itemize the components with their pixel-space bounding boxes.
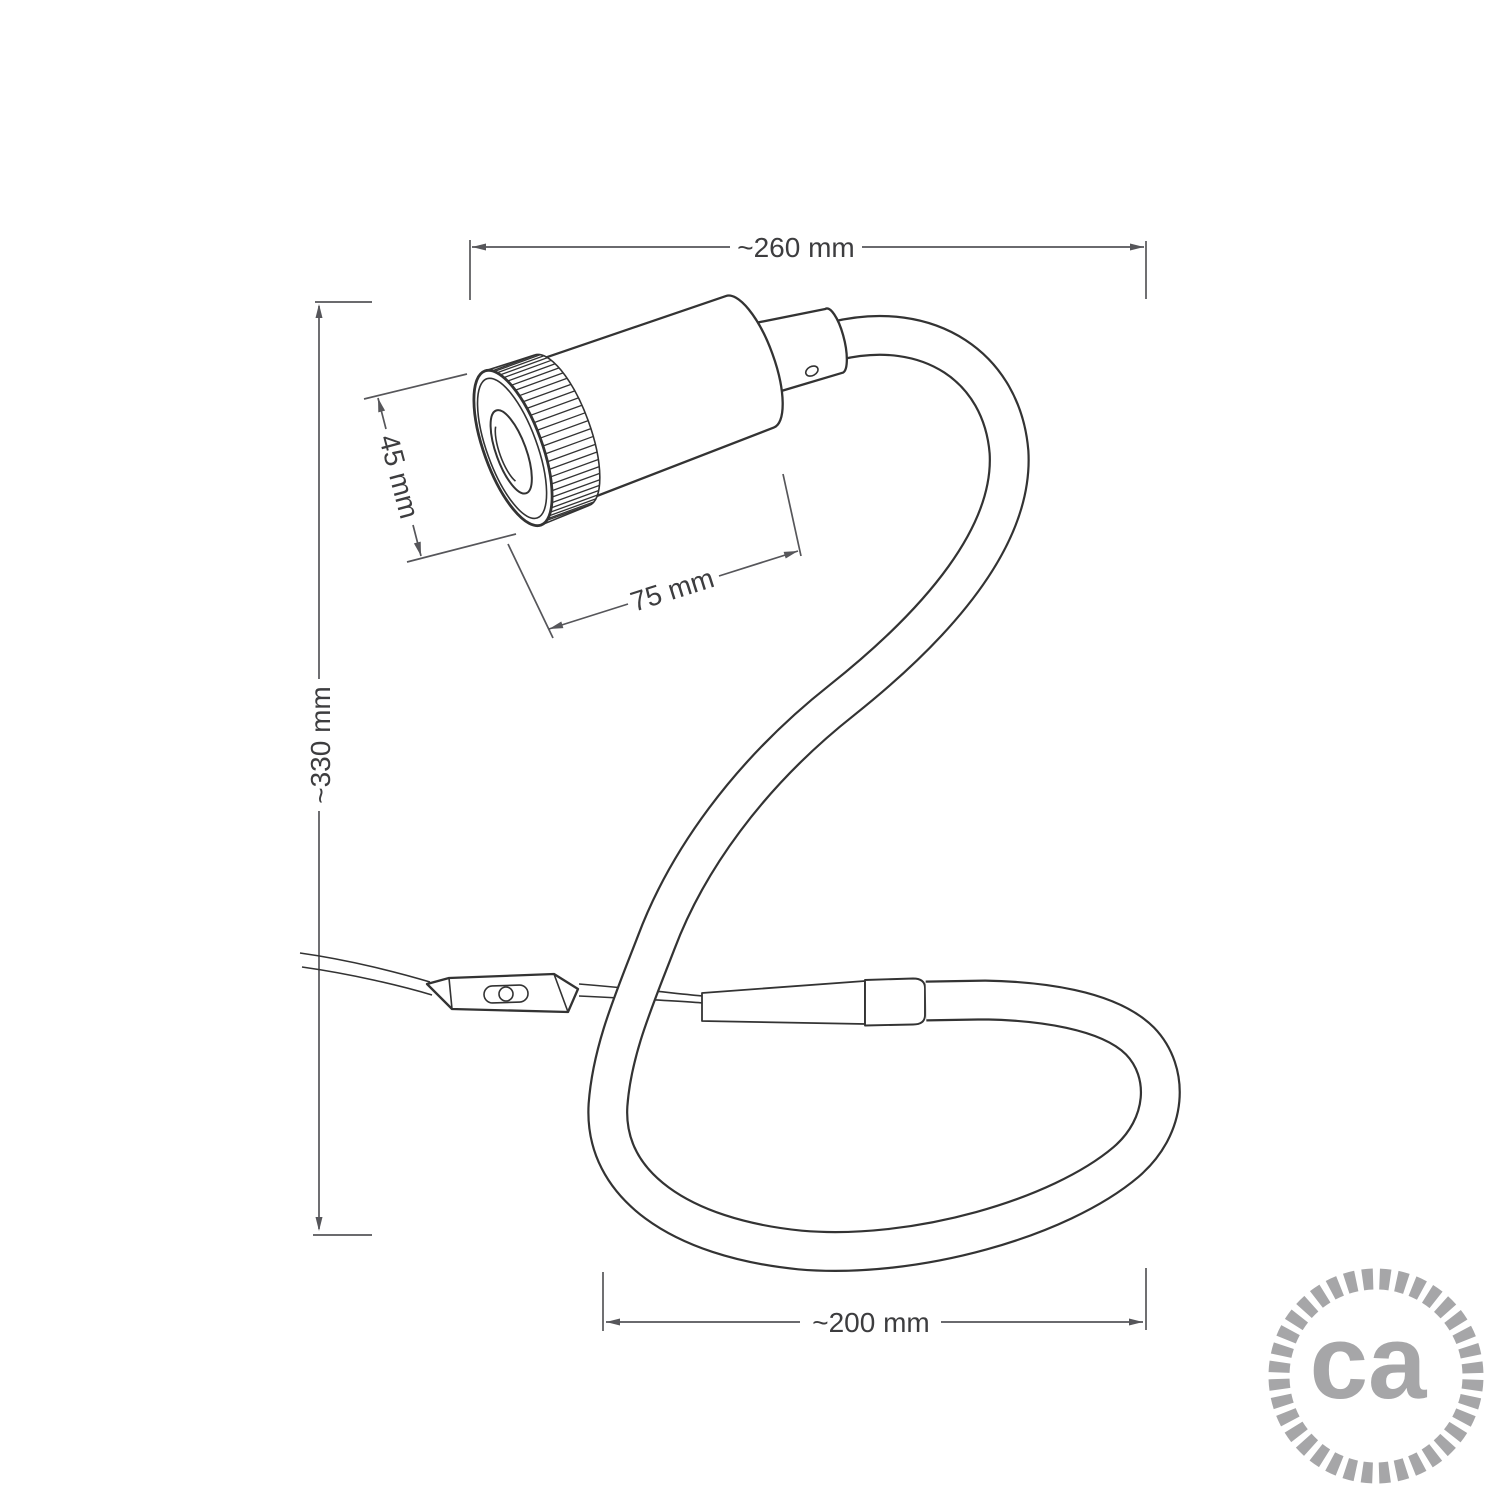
ferrule [865,979,925,1026]
dimension-top-width: ~260 mm [470,232,1146,300]
arrowhead-right [784,551,798,559]
arrowhead-right [1130,244,1144,251]
witness-line [364,374,467,399]
arrowhead-right [1129,1319,1143,1326]
arrowhead-left [472,244,486,251]
arrowhead-left [549,622,563,630]
cable-sleeve [702,981,865,1024]
arrowhead-bottom [414,542,421,556]
witness-line [407,534,516,562]
tube-fill [608,335,1161,1251]
lamp-head [458,250,872,535]
inline-switch [427,974,578,1012]
dimension-bottom-width: ~200 mm [603,1268,1146,1338]
dimension-label-head-length: 75 mm [627,562,718,617]
arrowhead-top [316,304,323,318]
lamp-technical-drawing: ~260 mm ~330 mm ~200 mm 45 mm 75 mm [0,0,1500,1500]
cord-line [302,967,432,995]
witness-line [783,474,801,556]
witness-line [508,544,553,638]
dimension-label-bottom-width: ~200 mm [812,1307,930,1338]
arrowhead-left [606,1319,620,1326]
dimension-label-head-diameter: 45 mm [373,431,425,522]
sleeve-body [702,981,865,1024]
dimension-label-left-height: ~330 mm [305,686,336,804]
brand-logo[interactable]: ca [1261,1261,1491,1491]
technical-drawing-page: ~260 mm ~330 mm ~200 mm 45 mm 75 mm [0,0,1500,1500]
dimension-label-top-width: ~260 mm [737,232,855,263]
arrowhead-bottom [316,1217,323,1231]
arrowhead-top [378,398,385,412]
ferrule-body [865,979,925,1026]
brand-logo-text: ca [1310,1304,1428,1421]
gooseneck-tube [608,335,1161,1251]
tube-outline [608,335,1161,1251]
dimension-left-height: ~330 mm [305,302,372,1235]
